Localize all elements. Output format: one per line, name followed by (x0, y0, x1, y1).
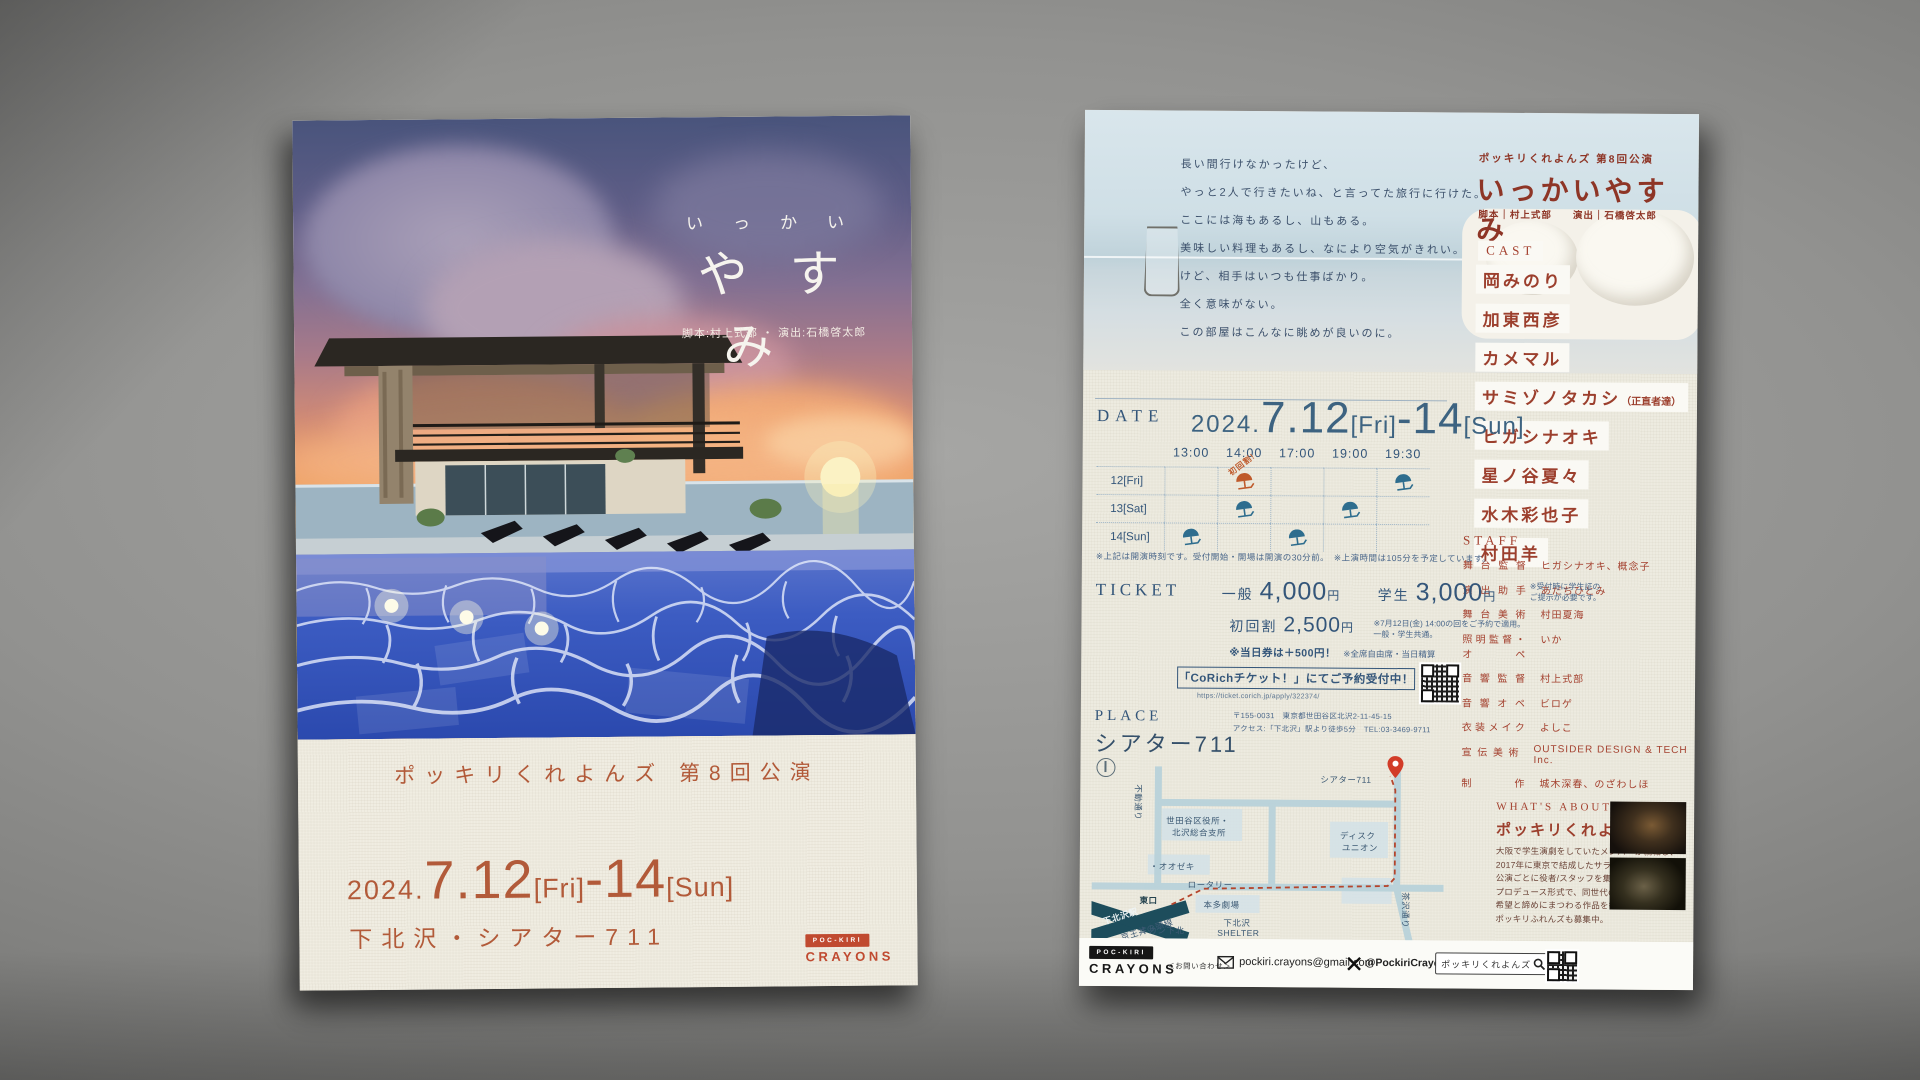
date-section-label: DATE (1097, 406, 1165, 426)
poem-line: ここには海もあるし、山もある。 (1180, 207, 1487, 237)
date-weekday1: [Fri] (533, 873, 585, 903)
logo-word: CRAYONS (1089, 961, 1177, 977)
map-label: ディスク (1340, 830, 1375, 842)
front-title-main: やすみ (623, 233, 914, 380)
corich-url: https://ticket.corich.jp/apply/322374/ (1197, 693, 1320, 701)
cast-member: 星ノ谷夏々 (1474, 460, 1588, 490)
map-label: ロータリー (1188, 879, 1233, 891)
map-label: 本多劇場 (1203, 899, 1239, 911)
map-label: 北沢総合支所 (1172, 826, 1226, 838)
ticket-student: 学生3,000円 (1378, 578, 1496, 608)
date-day1: 7.12 (424, 850, 534, 911)
staff-role: 衣装メイク (1462, 719, 1526, 734)
price-label: 学生 (1378, 587, 1410, 603)
about-line: ポッキリふれんズも募集中。 (1495, 912, 1678, 927)
schedule-time-header: 19:00 (1324, 440, 1377, 468)
date-year: 2024. (347, 875, 425, 906)
sameday-note: ※当日券は＋500円！ (1229, 645, 1336, 661)
staff-row: 衣装メイクよしこ (1462, 719, 1695, 736)
staff-row: 音響オペビロゲ (1462, 694, 1695, 711)
cast-member: 加東西彦 (1476, 304, 1570, 334)
seat-note: ※全席自由席・当日精算 (1343, 649, 1435, 661)
map-label: ・オオゼキ (1150, 860, 1195, 872)
search-box: ポッキリくれよんズ (1435, 952, 1551, 975)
staff-role: 音響オペ (1462, 694, 1526, 709)
date-weekday2: [Sun] (666, 872, 734, 903)
back-company-line: ポッキリくれよんズ 第8回公演 (1479, 151, 1654, 167)
staff-role: 制作 (1461, 775, 1525, 790)
schedule-time-header: 17:00 (1271, 439, 1324, 467)
back-credit: 脚本｜村上式部 演出｜石橋啓太郎 (1478, 207, 1657, 222)
front-company-logo: POC-KIRI CRAYONS (805, 933, 894, 964)
staff-name: OUTSIDER DESIGN & TECH Inc. (1533, 744, 1694, 767)
map-compass-icon (1096, 758, 1115, 777)
cast-member: 岡みのり (1476, 265, 1570, 295)
logo-word: CRAYONS (805, 948, 893, 964)
schedule-empty-cell (1376, 524, 1429, 552)
lantern (1144, 226, 1180, 296)
schedule-empty-cell (1323, 524, 1376, 552)
schedule-note: ※上記は開演時刻です。受付開始・開場は開演の30分前。 ※上演時間は105分を予… (1096, 550, 1491, 565)
date-weekday2: [Sun] (1463, 413, 1524, 440)
schedule-empty-cell (1376, 496, 1429, 524)
schedule-time-header: 19:30 (1377, 440, 1430, 468)
place-venue: シアター711 (1095, 726, 1239, 759)
map-label: 不動通り (1132, 784, 1144, 820)
staff-name: ヒガシナオキ、概念子 (1541, 557, 1651, 573)
note-line: 一般・学生共通。 (1373, 629, 1525, 641)
cast-member: カメマル (1475, 343, 1569, 373)
poem-line: けど、相手はいつも仕事ばかり。 (1180, 263, 1487, 293)
search-icon (1533, 958, 1545, 970)
map-label: 世田谷区役所・ (1166, 814, 1229, 826)
staff-row: 音響監督村上式部 (1462, 670, 1695, 687)
logo-box-text: POC-KIRI (1089, 946, 1153, 959)
cast-member-name: カメマル (1482, 350, 1562, 370)
date-weekday1: [Fri] (1350, 412, 1397, 439)
schedule-empty-cell (1164, 466, 1217, 494)
staff-name: ビロゲ (1540, 695, 1573, 710)
student-note: ※受付時に学生証のご提示が必要です。 (1530, 581, 1601, 603)
map-label: SHELTER (1217, 928, 1259, 938)
schedule-day-label: 14[Sun] (1096, 522, 1164, 550)
schedule-time-header: 13:00 (1165, 438, 1218, 466)
cast-label: CAST (1478, 241, 1543, 261)
schedule-empty-cell (1270, 467, 1323, 495)
front-company-line: ポッキリくれよんズ 第8回公演 (298, 755, 916, 790)
stage-photo-1 (1610, 802, 1686, 855)
price-value: 4,000 (1260, 577, 1328, 605)
schedule-empty-cell (1164, 494, 1217, 522)
price-value: 2,500 (1283, 613, 1341, 636)
footer-qr-code (1547, 951, 1577, 981)
access-map: 不動通りシアター711世田谷区役所・北沢総合支所・オオゼキディスクユニオンロータ… (1091, 758, 1444, 942)
staff-row: 宣伝美術OUTSIDER DESIGN & TECH Inc. (1462, 743, 1695, 767)
poem-line: 美味しい料理もあるし、なにより空気がきれい。 (1180, 235, 1487, 265)
ticket-discount: 初回割2,500円 (1229, 613, 1353, 638)
poem-line: この部屋はこんなに眺めが良いのに。 (1179, 319, 1486, 349)
date-day1: 7.12 (1261, 393, 1351, 443)
note-line: ※受付時に学生証の (1530, 581, 1601, 592)
schedule-show-mark (1323, 496, 1376, 524)
stage-photo-2 (1609, 858, 1685, 911)
price-label: 一般 (1222, 586, 1254, 602)
price-unit: 円 (1327, 589, 1339, 603)
ticket-section-label: TICKET (1096, 580, 1181, 601)
map-label: ユニオン (1342, 842, 1378, 854)
staff-name: 城木深春、のざわしほ (1539, 775, 1649, 791)
date-day2: 14 (604, 848, 667, 909)
discount-note: ※7月12日(金) 14:00の回をご予約で適用。一般・学生共通。 (1373, 618, 1525, 641)
footer-company-logo: POC-KIRI CRAYONS (1089, 946, 1178, 977)
note-line: ご提示が必要です。 (1530, 592, 1601, 603)
price-unit: 円 (1341, 621, 1353, 635)
schedule-show-mark: 初回割! (1217, 467, 1270, 495)
staff-row: 舞台監督ヒガシナオキ、概念子 (1463, 557, 1696, 574)
map-label: 茶沢通り (1399, 892, 1411, 928)
staff-name: 村田夏海 (1541, 606, 1585, 621)
date-year: 2024. (1191, 411, 1261, 438)
search-query-text: ポッキリくれよんズ (1441, 957, 1531, 971)
poem-line: 全く意味がない。 (1180, 291, 1487, 321)
back-date: 2024.7.12[Fri]-14[Sun] (1191, 393, 1525, 445)
poem-block: 長い間行けなかったけど、やっと2人で行きたいね、と言ってた旅行に行けた。ここには… (1179, 151, 1487, 349)
front-date: 2024.7.12[Fri]-14[Sun] (347, 847, 735, 912)
about-section-label: WHAT'S ABOUT (1496, 801, 1612, 814)
staff-label: STAFF (1463, 533, 1521, 549)
logo-box-text: POC-KIRI (805, 934, 869, 948)
staff-name: いか (1540, 631, 1562, 661)
cast-member: 水木彩也子 (1474, 499, 1588, 529)
price-unit: 円 (1483, 590, 1495, 604)
address-line: アクセス:「下北沢」駅より徒歩5分 TEL:03-3469-9711 (1233, 722, 1431, 736)
x-social-icon (1347, 957, 1361, 971)
price-label: 初回割 (1229, 618, 1277, 634)
schedule-show-mark (1164, 522, 1217, 550)
corich-qr-code (1421, 664, 1459, 702)
schedule-show-mark (1217, 495, 1270, 523)
staff-role: 音響監督 (1462, 670, 1526, 685)
date-dash: - (585, 849, 605, 909)
ticket-general: 一般4,000円 (1222, 577, 1340, 607)
schedule-show-mark (1270, 523, 1323, 551)
front-credit: 脚本:村上式部 ・ 演出:石橋啓太郎 (654, 323, 894, 341)
schedule-empty-cell (1217, 523, 1270, 551)
price-value: 3,000 (1416, 578, 1484, 606)
map-label: 東口 (1140, 894, 1158, 906)
map-label: シアター711 (1320, 774, 1371, 786)
schedule-grid: 13:0014:0017:0019:0019:3012[Fri]初回割!13[S… (1096, 438, 1430, 552)
staff-name: よしこ (1540, 719, 1573, 734)
cast-member-name: 加東西彦 (1483, 311, 1563, 331)
corich-banner: 「CoRichチケット！」にてご予約受付中！ (1177, 667, 1415, 691)
schedule-day-label: 13[Sat] (1096, 494, 1164, 522)
staff-name: 村上式部 (1540, 670, 1584, 685)
cast-member-name: 星ノ谷夏々 (1481, 467, 1581, 487)
cast-member-name: 水木彩也子 (1481, 506, 1581, 526)
cast-member-note: （正直者達） (1621, 397, 1681, 408)
mail-icon (1217, 956, 1234, 969)
date-day2: 14 (1412, 394, 1463, 443)
schedule-empty-cell (1323, 468, 1376, 496)
front-illustration: いっかい やすみ 脚本:村上式部 ・ 演出:石橋啓太郎 (292, 115, 915, 739)
staff-row: 制作城木深春、のざわしほ (1461, 775, 1694, 792)
poem-line: 長い間行けなかったけど、 (1181, 151, 1488, 181)
map-pin-icon (1387, 756, 1403, 778)
place-address: 〒155-0031 東京都世田谷区北沢2-11-45-15 アクセス:「下北沢」… (1233, 709, 1431, 736)
poem-line: やっと2人で行きたいね、と言ってた旅行に行けた。 (1180, 179, 1487, 209)
schedule-day-label: 12[Fri] (1096, 466, 1164, 494)
cast-member-name: 岡みのり (1483, 272, 1563, 292)
schedule-show-mark (1376, 468, 1429, 496)
staff-role: 宣伝美術 (1462, 743, 1520, 765)
back-poster: 長い間行けなかったけど、やっと2人で行きたいね、と言ってた旅行に行けた。ここには… (1079, 110, 1699, 990)
front-poster: いっかい やすみ 脚本:村上式部 ・ 演出:石橋啓太郎 ポッキリくれよんズ 第8… (292, 115, 918, 990)
schedule-empty-cell (1270, 495, 1323, 523)
date-dash: - (1397, 394, 1413, 443)
front-title-kana-small: いっかい (645, 208, 885, 235)
place-section-label: PLACE (1095, 708, 1163, 725)
front-venue: 下北沢・シアター711 (349, 917, 669, 954)
